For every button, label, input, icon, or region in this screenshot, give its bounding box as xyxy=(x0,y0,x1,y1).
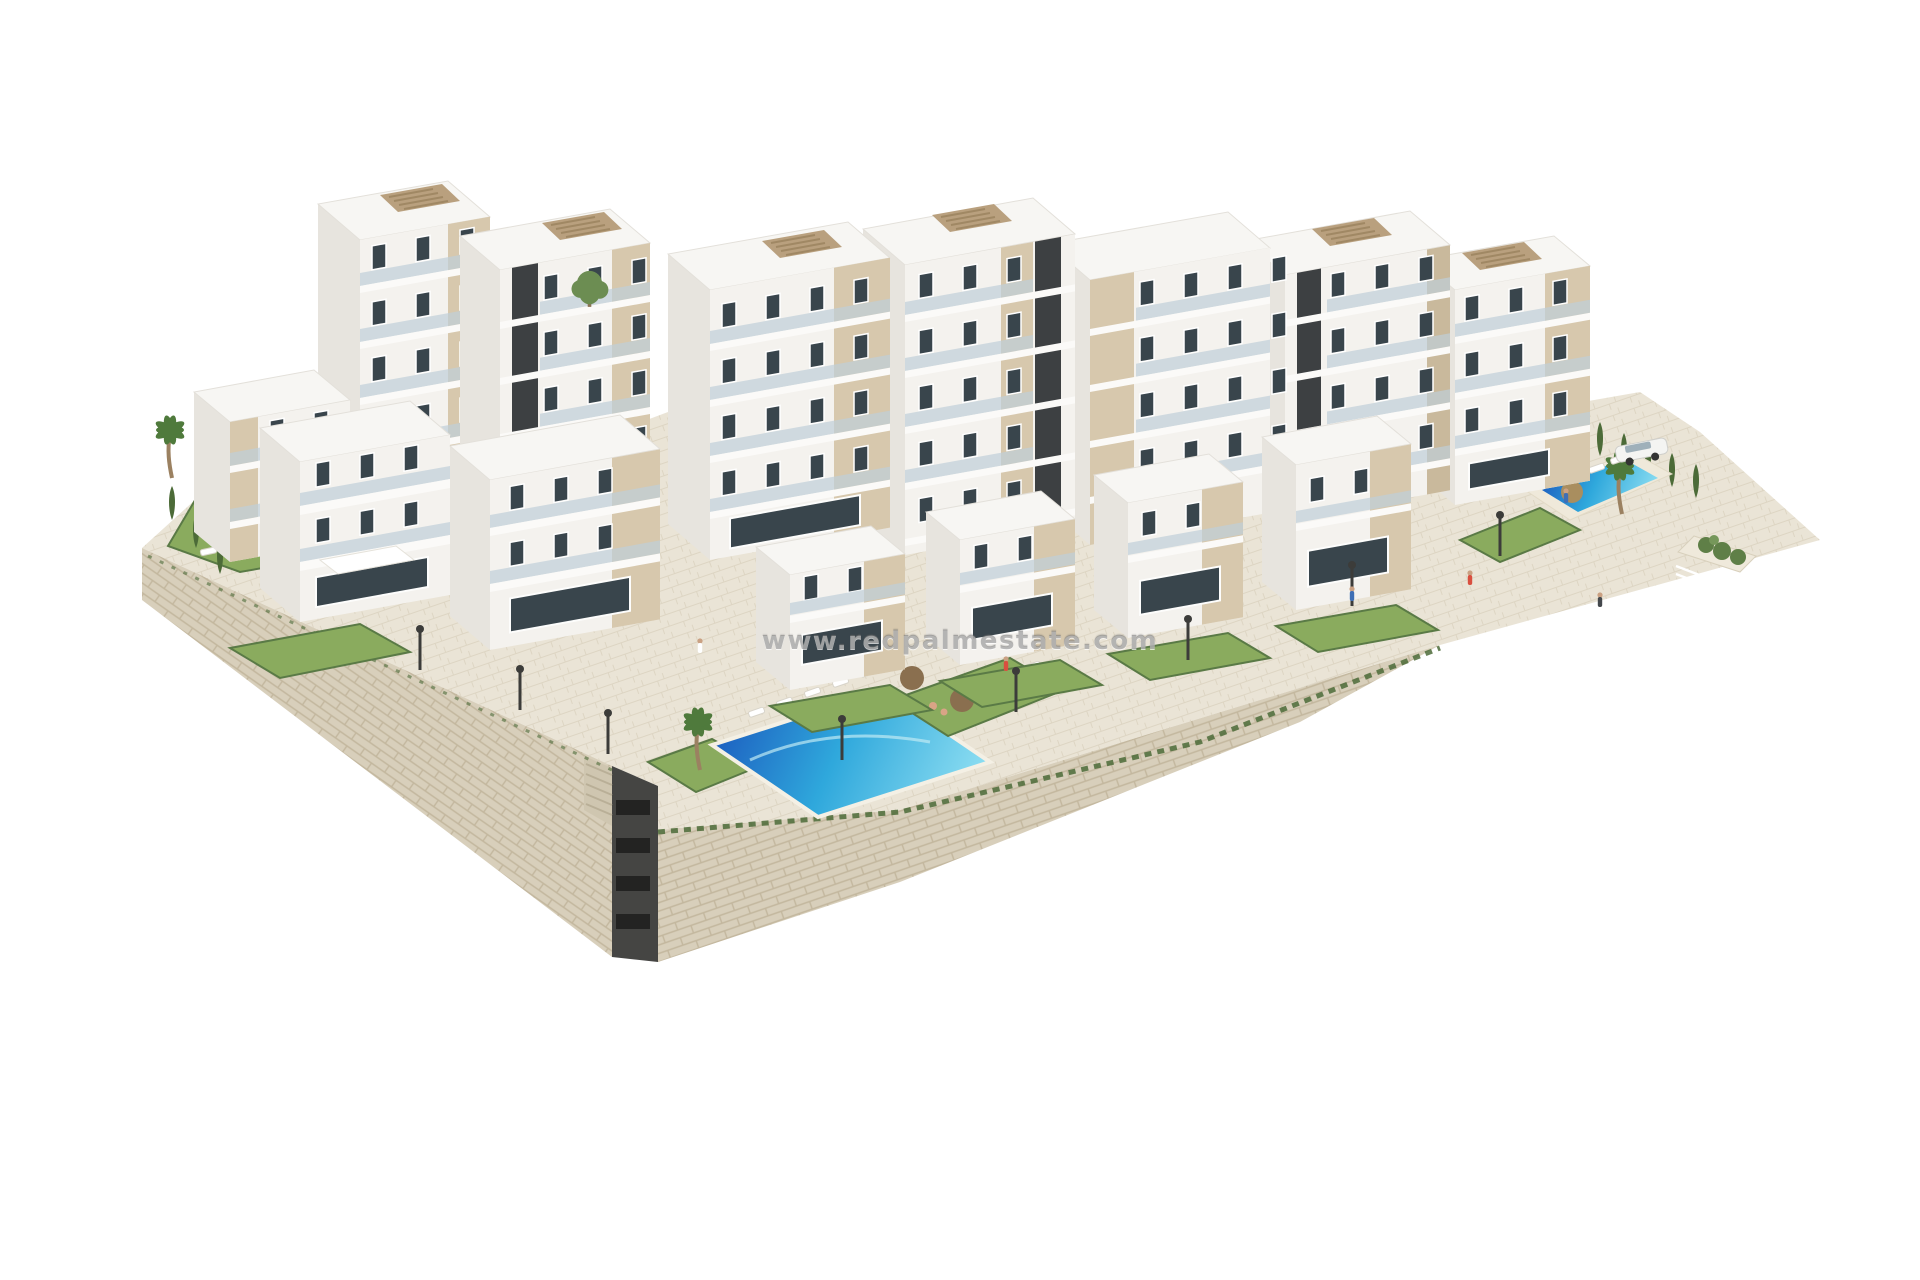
swimmer xyxy=(941,709,948,716)
terraced-villa-1 xyxy=(756,526,905,690)
render-canvas: www.redpalmestate.com xyxy=(0,0,1920,1280)
service-shaft xyxy=(612,766,658,962)
apartment-block-1 xyxy=(260,401,450,622)
apartment-block-6 xyxy=(668,222,890,560)
terraced-villa-3 xyxy=(1094,454,1243,638)
parasol xyxy=(900,666,924,690)
watermark: www.redpalmestate.com xyxy=(762,626,1158,656)
terraced-villa-4 xyxy=(1262,416,1411,610)
palm-tree xyxy=(154,414,187,478)
apartment-block-5 xyxy=(450,415,660,650)
